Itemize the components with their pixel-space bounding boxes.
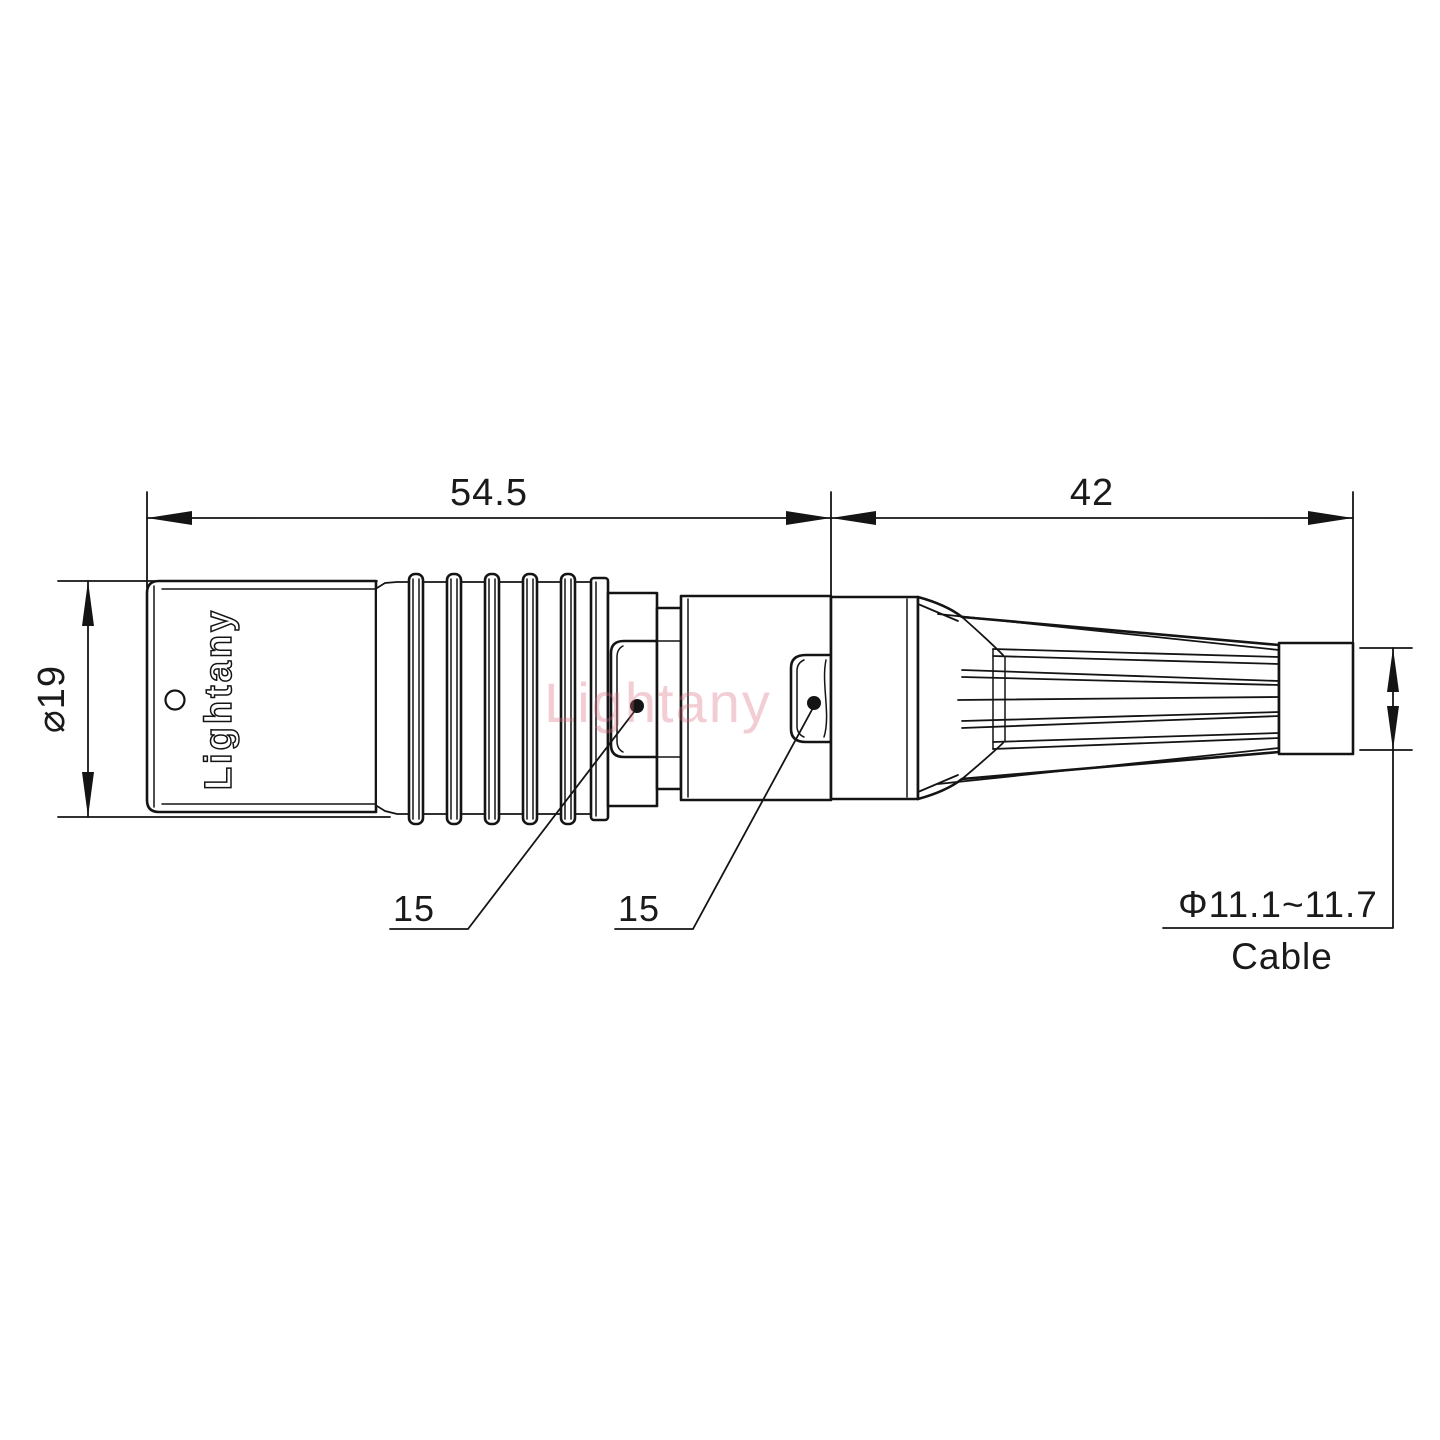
connector-drawing: 54.5 42 ⌀19 15 15 Φ11.1~11.7 Cable Light… bbox=[0, 0, 1440, 1440]
cable-diameter-label: Φ11.1~11.7 bbox=[1178, 884, 1378, 925]
dim-body-diameter-label: ⌀19 bbox=[31, 665, 73, 733]
dim-body-length-label: 54.5 bbox=[450, 472, 528, 514]
arrowhead bbox=[82, 581, 94, 626]
watermark-text: Lightany bbox=[544, 671, 772, 734]
body-brand-text: Lightany bbox=[198, 608, 240, 790]
leader-right-label: 15 bbox=[618, 888, 660, 929]
cable-label: Cable bbox=[1231, 936, 1333, 977]
technical-drawing-page: 54.5 42 ⌀19 15 15 Φ11.1~11.7 Cable Light… bbox=[0, 0, 1440, 1440]
arrowhead bbox=[831, 511, 876, 525]
arrowhead bbox=[1308, 511, 1353, 525]
housing-body bbox=[147, 581, 376, 812]
leader-left-label: 15 bbox=[393, 888, 435, 929]
arrowhead bbox=[147, 511, 192, 525]
arrowhead bbox=[786, 511, 831, 525]
arrowhead bbox=[1387, 706, 1399, 750]
arrowhead bbox=[1387, 648, 1399, 692]
relief-collar bbox=[831, 597, 918, 799]
dim-relief-length-label: 42 bbox=[1070, 472, 1114, 514]
cable-stub bbox=[1279, 643, 1353, 754]
leader-dot-right bbox=[807, 696, 821, 710]
arrowhead bbox=[82, 772, 94, 817]
